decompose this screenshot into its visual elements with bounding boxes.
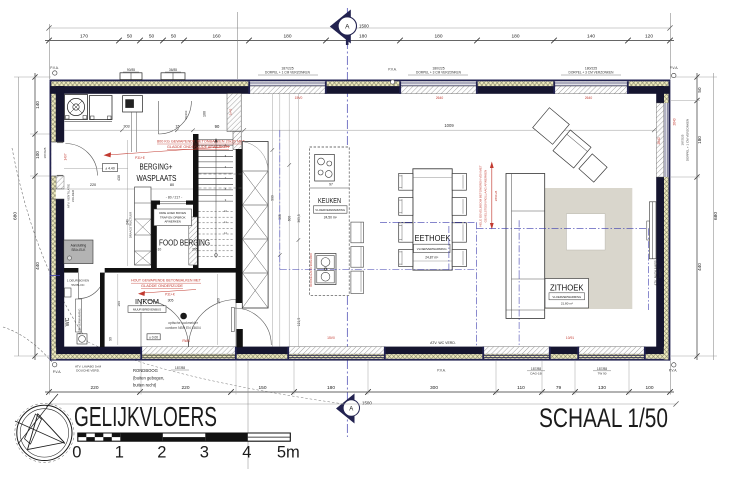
svg-text:DRAAGSTRUCTUUR: DRAAGSTRUCTUUR: [129, 212, 133, 238]
svg-text:A: A: [345, 23, 350, 30]
svg-text:GLADDE ONDERZIJDE: GLADDE ONDERZIJDE: [141, 284, 183, 288]
svg-text:RONDBOOG: RONDBOOG: [133, 368, 158, 373]
svg-text:4: 4: [242, 444, 251, 462]
svg-text:DORPEL + 1 CM VERZONKEN: DORPEL + 1 CM VERZONKEN: [686, 119, 690, 161]
svg-text:100: 100: [203, 111, 207, 117]
svg-text:170: 170: [80, 34, 88, 40]
svg-text:2640: 2640: [585, 96, 593, 100]
svg-text:140: 140: [587, 34, 595, 40]
svg-text:ATV. WC VERD.: ATV. WC VERD.: [430, 341, 456, 345]
svg-text:600: 600: [288, 216, 292, 222]
svg-text:150: 150: [258, 385, 266, 391]
svg-text:P.V.A.: P.V.A.: [388, 68, 397, 72]
svg-text:180: 180: [283, 34, 291, 40]
svg-text:50: 50: [171, 34, 177, 40]
svg-text:50: 50: [127, 34, 133, 40]
svg-text:187/88: 187/88: [597, 367, 607, 371]
svg-text:2640: 2640: [673, 118, 677, 125]
svg-text:1500: 1500: [359, 24, 369, 29]
svg-text:140: 140: [35, 101, 40, 109]
svg-text:90: 90: [109, 337, 113, 341]
svg-text:187/225: 187/225: [43, 147, 47, 158]
svg-text:-10: -10: [156, 248, 161, 252]
svg-text:ATV. BADKAMER: ATV. BADKAMER: [654, 260, 658, 286]
svg-text:conform NBN EN 14604: conform NBN EN 14604: [165, 326, 201, 330]
svg-text:100: 100: [35, 151, 40, 159]
svg-text:10/91: 10/91: [566, 336, 574, 340]
svg-text:SB.b-ELK: SB.b-ELK: [71, 248, 86, 252]
svg-text:180: 180: [434, 34, 442, 40]
svg-text:180: 180: [217, 298, 221, 304]
svg-text:GELIJKVLOERS: GELIJKVLOERS: [74, 401, 217, 432]
svg-text:P.V.A.: P.V.A.: [669, 369, 678, 373]
svg-text:DORPEL + 3 CM VERZONKEN: DORPEL + 3 CM VERZONKEN: [416, 71, 462, 75]
svg-text:EETHOEK: EETHOEK: [415, 234, 451, 243]
svg-text:363,5: 363,5: [297, 214, 301, 222]
svg-text:180: 180: [359, 34, 367, 40]
svg-text:100: 100: [645, 385, 653, 391]
svg-text:(buiten gebogen,: (buiten gebogen,: [133, 375, 164, 380]
svg-text:120: 120: [645, 34, 653, 40]
svg-text:± 4.40: ± 4.40: [105, 166, 115, 170]
svg-text:VLOERVERWARMING: VLOERVERWARMING: [552, 295, 581, 299]
svg-text:5m: 5m: [277, 444, 300, 462]
svg-text:295: 295: [192, 248, 198, 252]
svg-text:INKOM: INKOM: [135, 297, 159, 306]
svg-text:KOOKEILAND 900x3000: KOOKEILAND 900x3000: [309, 253, 313, 287]
svg-text:160: 160: [212, 34, 220, 40]
svg-text:305: 305: [168, 299, 174, 303]
svg-text:GEVELSTEEN ROLLAAG AFWERKEN: GEVELSTEEN ROLLAAG AFWERKEN: [483, 170, 487, 223]
svg-text:buiten recht): buiten recht): [133, 383, 157, 388]
svg-text:VLOERVERWARMING: VLOERVERWARMING: [315, 208, 346, 212]
svg-text:VERD.: VERD.: [659, 268, 663, 278]
svg-text:WC: WC: [65, 317, 71, 326]
svg-text:2640: 2640: [436, 96, 444, 100]
svg-text:TW 90: TW 90: [598, 372, 607, 376]
svg-text:2x42: 2x42: [229, 108, 233, 115]
svg-text:220: 220: [90, 183, 96, 187]
svg-text:BERGING+: BERGING+: [140, 163, 173, 172]
svg-text:DORPEL + 1 CM VERZONKEN: DORPEL + 1 CM VERZONKEN: [265, 71, 311, 75]
svg-text:36/85: 36/85: [169, 68, 177, 72]
svg-text:121,5: 121,5: [297, 318, 301, 327]
svg-text:± 0.00: ± 0.00: [149, 335, 158, 339]
svg-text:DAG-1B: DAG-1B: [530, 372, 541, 376]
svg-text:79: 79: [556, 385, 562, 391]
svg-text:80: 80: [170, 183, 174, 187]
svg-text:P31+K: P31+K: [165, 292, 176, 296]
svg-text:Aansluiting: Aansluiting: [71, 244, 87, 248]
svg-text:DORPEL + 3 CM VERZONKEN: DORPEL + 3 CM VERZONKEN: [569, 71, 615, 75]
svg-text:2640: 2640: [657, 137, 661, 144]
svg-text:440: 440: [697, 263, 702, 271]
svg-text:HELE GEVELBOOM BETONEREN VEN M: HELE GEVELBOOM BETONEREN VEN MET: [479, 165, 483, 227]
svg-text:180: 180: [511, 34, 519, 40]
svg-text:130: 130: [598, 385, 606, 391]
svg-text:RWA: RWA: [182, 339, 190, 343]
svg-text:P31+E: P31+E: [135, 156, 146, 160]
svg-text:187/88: 187/88: [531, 367, 541, 371]
svg-text:300: 300: [430, 385, 438, 391]
svg-text:VLOERVERWARMING: VLOERVERWARMING: [417, 247, 448, 251]
svg-text:5M BLOC: 5M BLOC: [71, 283, 85, 287]
svg-text:A: A: [349, 406, 353, 412]
svg-text:AFWERKEN: AFWERKEN: [165, 220, 181, 224]
svg-text:WASPLAATS: WASPLAATS: [137, 174, 177, 183]
svg-text:90: 90: [215, 124, 220, 129]
svg-text:- 80 / 217 -: - 80 / 217 -: [166, 196, 182, 200]
svg-text:VLOERVERWARMING: VLOERVERWARMING: [77, 309, 81, 336]
svg-text:15: 15: [175, 124, 179, 128]
svg-text:680: 680: [13, 212, 19, 220]
svg-text:P.V.A.: P.V.A.: [670, 66, 679, 70]
svg-text:P.V.A.: P.V.A.: [50, 66, 59, 70]
svg-text:2860+B: 2860+B: [494, 191, 498, 201]
svg-text:440: 440: [35, 262, 40, 270]
svg-text:2: 2: [157, 444, 166, 462]
svg-text:24,87 m²: 24,87 m²: [425, 256, 439, 260]
svg-text:SCHAAL 1/50: SCHAAL 1/50: [539, 403, 668, 433]
svg-text:110: 110: [517, 385, 525, 391]
svg-text:KEUKEN: KEUKEN: [318, 196, 341, 205]
svg-text:MUUR BRIEVENBUS: MUUR BRIEVENBUS: [133, 307, 161, 311]
svg-text:430: 430: [117, 175, 121, 181]
svg-text:97: 97: [329, 183, 333, 187]
svg-text:90/85: 90/85: [127, 68, 135, 72]
svg-text:24,50 m²: 24,50 m²: [324, 216, 338, 220]
svg-text:90/293: 90/293: [184, 110, 188, 119]
svg-text:800 KG GEWAPENDE BETONBALKEN 2: 800 KG GEWAPENDE BETONBALKEN 20x20 MET: [157, 140, 245, 144]
svg-text:1009: 1009: [444, 123, 454, 128]
svg-text:0: 0: [72, 444, 81, 462]
svg-text:15V0: 15V0: [295, 96, 303, 100]
svg-text:303: 303: [123, 124, 129, 128]
svg-text:ZITHOEK: ZITHOEK: [550, 284, 584, 293]
svg-text:180: 180: [697, 136, 702, 144]
svg-text:HOUT GEWAPENDE BETONBALKEN MET: HOUT GEWAPENDE BETONBALKEN MET: [131, 279, 201, 283]
svg-text:3: 3: [200, 444, 209, 462]
svg-text:50: 50: [149, 34, 155, 40]
svg-text:21,80 m²: 21,80 m²: [561, 302, 573, 306]
svg-text:P.V.A.: P.V.A.: [437, 369, 446, 373]
svg-text:optische rookmelder: optische rookmelder: [168, 321, 199, 325]
svg-text:1500: 1500: [362, 401, 372, 406]
svg-text:1497: 1497: [64, 153, 68, 160]
svg-text:365: 365: [278, 214, 282, 220]
svg-text:180: 180: [327, 385, 335, 391]
svg-text:680: 680: [713, 212, 719, 220]
svg-text:50: 50: [697, 87, 702, 93]
svg-text:187/88: 187/88: [175, 366, 185, 370]
svg-text:1: 1: [115, 444, 124, 462]
svg-text:P.V.A.: P.V.A.: [53, 370, 62, 374]
svg-text:DOUCHE VERD.: DOUCHE VERD.: [76, 369, 100, 373]
svg-text:FOOD BERGING: FOOD BERGING: [159, 238, 210, 247]
svg-text:220: 220: [90, 385, 98, 391]
svg-text:500: 500: [271, 195, 275, 201]
svg-text:15V0: 15V0: [327, 336, 335, 340]
svg-text:ZOLDER: ZOLDER: [71, 189, 75, 202]
svg-text:187/225: 187/225: [681, 134, 685, 145]
svg-text:220: 220: [181, 385, 189, 391]
